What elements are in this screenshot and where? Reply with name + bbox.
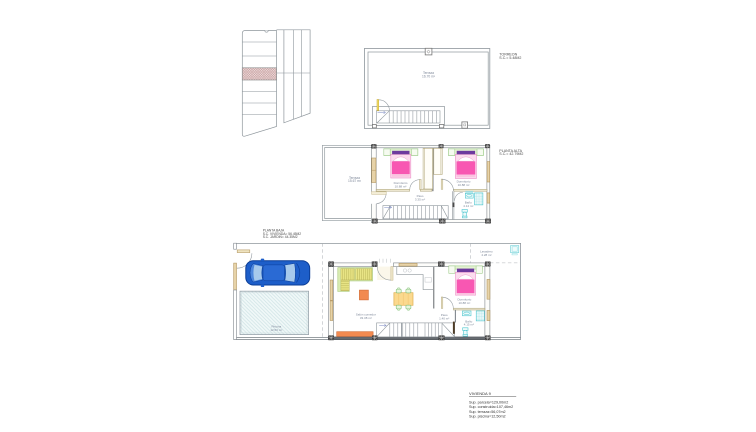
svg-text:Sup. piscina=12,50m2: Sup. piscina=12,50m2 (469, 415, 506, 419)
svg-text:S.C.= 5.48M2: S.C.= 5.48M2 (499, 56, 521, 60)
svg-text:Sup. terraza=56,07m2: Sup. terraza=56,07m2 (469, 410, 506, 414)
svg-text:4.15 m²: 4.15 m² (464, 323, 474, 327)
svg-text:VIVIENDA 9: VIVIENDA 9 (469, 391, 492, 396)
svg-text:33.38 m²: 33.38 m² (360, 316, 372, 320)
svg-text:Sup. construida=107,46m2: Sup. construida=107,46m2 (469, 405, 513, 409)
svg-text:10.88 m²: 10.88 m² (458, 301, 470, 305)
svg-text:S.C.= 42.79M2: S.C.= 42.79M2 (499, 152, 523, 156)
svg-text:3.35 m²: 3.35 m² (415, 197, 425, 201)
svg-text:Sup. parcela=129,00m2: Sup. parcela=129,00m2 (469, 400, 508, 404)
svg-text:16.70 m²: 16.70 m² (422, 75, 436, 79)
svg-text:15.67 m²: 15.67 m² (348, 179, 362, 183)
svg-text:12.50 m²: 12.50 m² (270, 328, 282, 332)
svg-text:4.28 m²: 4.28 m² (481, 253, 491, 257)
svg-text:10.88 m²: 10.88 m² (395, 184, 407, 188)
svg-text:10.88 m²: 10.88 m² (458, 183, 470, 187)
svg-text:S.C. JARDIN= 44.35M2: S.C. JARDIN= 44.35M2 (263, 235, 298, 239)
svg-text:4.14 m²: 4.14 m² (463, 204, 473, 208)
svg-text:1.40 m²: 1.40 m² (439, 317, 449, 321)
